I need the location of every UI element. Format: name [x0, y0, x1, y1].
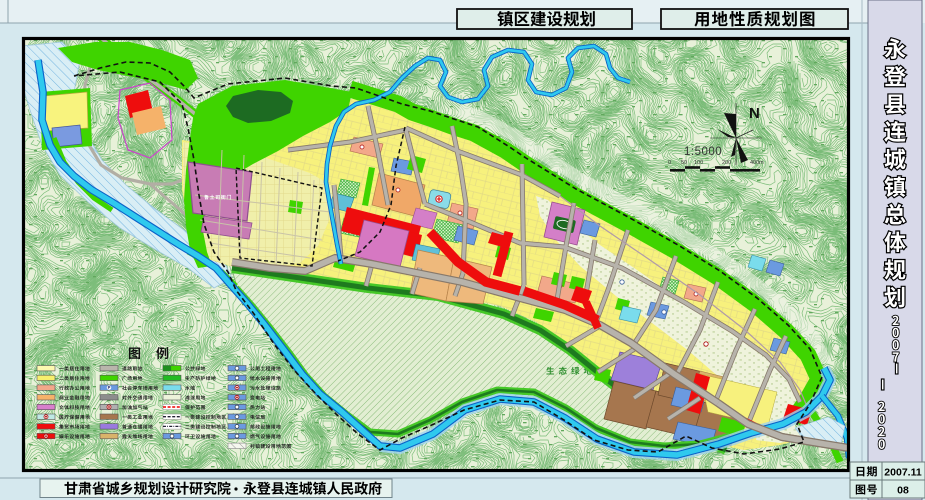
- svg-text:P: P: [108, 385, 111, 390]
- svg-text:200: 200: [722, 160, 731, 166]
- svg-text:08: 08: [897, 485, 909, 497]
- svg-text:100: 100: [694, 160, 703, 166]
- svg-text:0: 0: [668, 160, 671, 166]
- svg-text:N: N: [749, 105, 760, 122]
- svg-text:2007.11: 2007.11: [884, 467, 922, 479]
- svg-text:50: 50: [681, 160, 687, 166]
- svg-text:400m: 400m: [750, 160, 764, 166]
- svg-text:1:5000: 1:5000: [684, 146, 722, 158]
